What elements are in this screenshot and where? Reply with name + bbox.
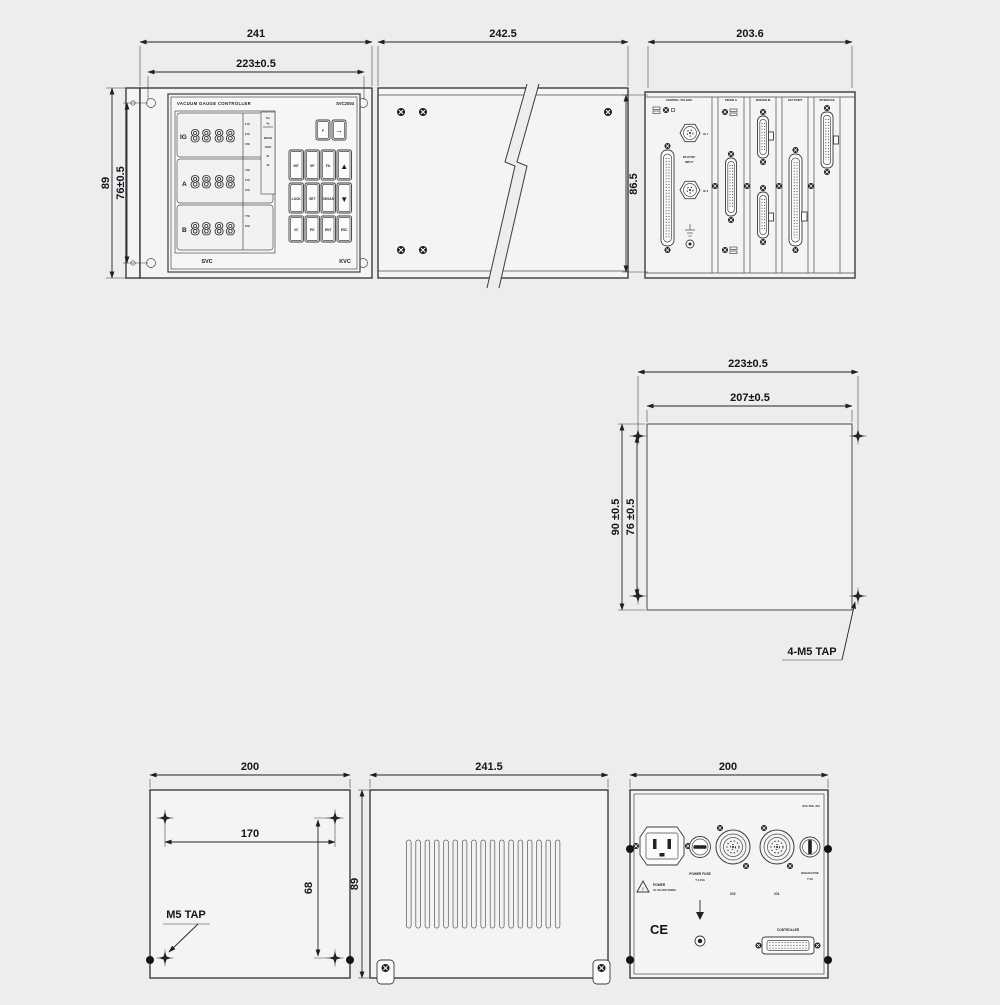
front-side-flange [126, 88, 140, 278]
seg-digits: 88 [190, 220, 212, 240]
front-title: VACUUM GAUGE CONTROLLER [177, 101, 251, 106]
led-indicator: 1 M [245, 122, 250, 126]
module-header: INTERFACE [819, 98, 834, 102]
vent-slots [407, 840, 560, 928]
dim-base-hole-width: 170 [241, 828, 259, 840]
panel-screw [626, 956, 634, 964]
seg-digits: 88 [214, 220, 236, 240]
outline-drawing-canvas: VACUUM GAUGE CONTROLLER SVC2004 IG A B 8… [0, 0, 1000, 1000]
module-header: SENSOR IN [756, 98, 771, 102]
key-f: F [322, 129, 324, 133]
seg-digits: 88 [214, 127, 236, 147]
screw-icon [419, 108, 427, 116]
ig1-label: IG1 [774, 892, 779, 896]
dsub15-connector [726, 158, 737, 216]
dim-front-width: 241 [247, 28, 265, 40]
screw-icon [728, 151, 734, 157]
dim-side-width: 242.5 [489, 28, 517, 40]
power-rear-view: SVC SOL-47A ! POWER AC 100-240V 50/60Hz … [626, 761, 832, 978]
tap-callout: 4-M5 TAP [787, 646, 836, 658]
dim-base-width: 200 [241, 761, 259, 773]
target-mark-icon [630, 428, 647, 445]
power-fuse-holder [690, 837, 711, 858]
led-indicator: 7 M [245, 214, 250, 218]
screw-icon [665, 143, 671, 149]
key: SET [309, 197, 315, 201]
row-label-b: B [182, 227, 187, 234]
dim-side2-height: 89 [349, 878, 361, 890]
switch-tab [802, 212, 808, 221]
key: DEGAS [323, 197, 334, 201]
screw-icon [722, 109, 728, 115]
row-label-ig: IG [180, 134, 187, 141]
fuse-rating: T 3.15A [695, 878, 705, 882]
front-view: VACUUM GAUGE CONTROLLER SVC2004 IG A B 8… [100, 28, 372, 278]
dim-mount-width: 223±0.5 [728, 358, 768, 370]
base-view: 200 170 68 M5 TAP [146, 761, 354, 978]
side-view-top: 242.5 [378, 28, 628, 288]
ig2-label: IG 2 [703, 189, 709, 193]
led-indicator: 5 M [245, 178, 250, 182]
panel-screw [626, 845, 634, 853]
degas-fuse-rating: T 2A [807, 877, 813, 881]
centronics-connector [756, 937, 821, 954]
pilot-label-1: PILOT/SP [683, 155, 695, 159]
screw-icon [824, 169, 830, 175]
module-header: SET POINT [788, 98, 803, 102]
dim-rear-height: 86.5 [628, 173, 640, 194]
pilot-label-2: INPUT [685, 160, 693, 164]
led-indicator: 2 M [245, 132, 250, 136]
screw-icon [663, 107, 669, 113]
dim-mount-height2: 76 ±0.5 [625, 499, 637, 536]
screw-icon [598, 964, 606, 972]
screw-icon [419, 246, 427, 254]
seg-digits: 88 [214, 173, 236, 193]
screw-icon [793, 247, 799, 253]
dsub9-connector [758, 116, 769, 158]
screw-icon [760, 109, 766, 115]
dim-front-width2: 223±0.5 [236, 58, 276, 70]
dsub9-connector [758, 192, 769, 238]
dsub25-connector [789, 154, 802, 246]
dsub15-connector [821, 112, 833, 168]
degas-fuse-label: DEGAS FUSE [801, 871, 819, 875]
side-view-bottom: 241.5 89 [349, 761, 610, 984]
dim-rear-width: 203.6 [736, 28, 764, 40]
power-rating: AC 100-240V 50/60Hz [653, 889, 677, 892]
screw-icon [382, 964, 390, 972]
key: LOCK [292, 197, 302, 201]
svg-text:!: ! [642, 887, 643, 892]
seg-digits: 88 [190, 127, 212, 147]
power-label: POWER [653, 883, 666, 887]
corner-foot [146, 956, 154, 964]
outline-drawing-page: VACUUM GAUGE CONTROLLER SVC2004 IG A B 8… [0, 0, 1000, 1000]
display-block: IG A B 88 88 88 88 88 88 1 M 2 M 3 M 4 M… [175, 111, 275, 253]
front-model: SVC2004 [336, 101, 355, 106]
key: PG [310, 228, 315, 232]
controller-label: CONTROLLER [777, 928, 800, 932]
rear-view: CONTROL / RS-232C PIRANI G SENSOR IN SET… [622, 28, 855, 278]
dim-front-height2: 76±0.5 [115, 166, 127, 200]
screw-icon [722, 247, 728, 253]
led-indicator: 4 M [245, 168, 250, 172]
power-model: SVC SOL-47A [802, 804, 820, 808]
module-header: PIRANI G [725, 98, 737, 102]
corner-foot [346, 956, 354, 964]
screw-icon [808, 183, 814, 189]
led-indicator: 3 M [245, 142, 250, 146]
panel-screw [824, 845, 832, 853]
screw-icon [760, 239, 766, 245]
ce-mark: CE [650, 922, 668, 937]
dim-mount-width2: 207±0.5 [730, 392, 770, 404]
screw-icon [397, 108, 405, 116]
key-down-icon: ▼ [340, 195, 348, 204]
seg-digits: 88 [190, 173, 212, 193]
degas-fuse-holder [800, 837, 820, 857]
screw-icon [744, 183, 750, 189]
switch-tab [769, 132, 774, 140]
brand-left: SVC [201, 259, 212, 265]
row-label-a: A [182, 181, 187, 188]
dim-power-width: 200 [719, 761, 737, 773]
key: IG [295, 228, 299, 232]
dim-front-height: 89 [100, 177, 112, 189]
unit-label: LOCK [265, 147, 272, 149]
unit-label: DEGAS [264, 137, 273, 140]
target-mark-icon [630, 588, 647, 605]
key-next-icon: → [335, 126, 343, 135]
screw-icon [776, 183, 782, 189]
brand-right: KVC [339, 259, 351, 265]
screw-icon [633, 843, 639, 849]
unit-label: Torr [266, 118, 271, 120]
screw-icon [760, 159, 766, 165]
dsub25-connector [661, 150, 674, 246]
dim-base-hole-height: 68 [303, 882, 315, 894]
key: ESC [341, 228, 348, 232]
dim-mount-height: 90 ±0.5 [610, 499, 622, 536]
screw-icon [824, 105, 830, 111]
screw-icon [604, 108, 612, 116]
ig2-label: IG2 [730, 892, 735, 896]
screw-icon [397, 246, 405, 254]
tap-callout: M5 TAP [166, 909, 206, 921]
screw-icon [712, 183, 718, 189]
panel-screw [824, 956, 832, 964]
switch-tab [834, 136, 839, 144]
dim-side2-width: 241.5 [475, 761, 503, 773]
key-up-icon: ▲ [340, 162, 348, 171]
mounting-view: 223±0.5 207±0.5 90 ±0.5 76 ±0.5 4-M5 TAP [610, 358, 867, 660]
led-indicator: 6 M [245, 188, 250, 192]
screw-icon [665, 247, 671, 253]
iec-inlet [640, 827, 684, 865]
led-indicator: 8 M [245, 224, 250, 228]
key: FIL [326, 164, 331, 168]
key: INT [294, 164, 299, 168]
screw-icon [760, 185, 766, 191]
switch-tab [769, 213, 774, 221]
ig1-label: IG 1 [703, 132, 709, 136]
module-header: CONTROL / RS-232C [666, 98, 693, 102]
screw-icon [793, 147, 799, 153]
fuse-label: POWER FUSE [689, 872, 710, 876]
key: ENT [325, 228, 331, 232]
screw-icon [728, 217, 734, 223]
